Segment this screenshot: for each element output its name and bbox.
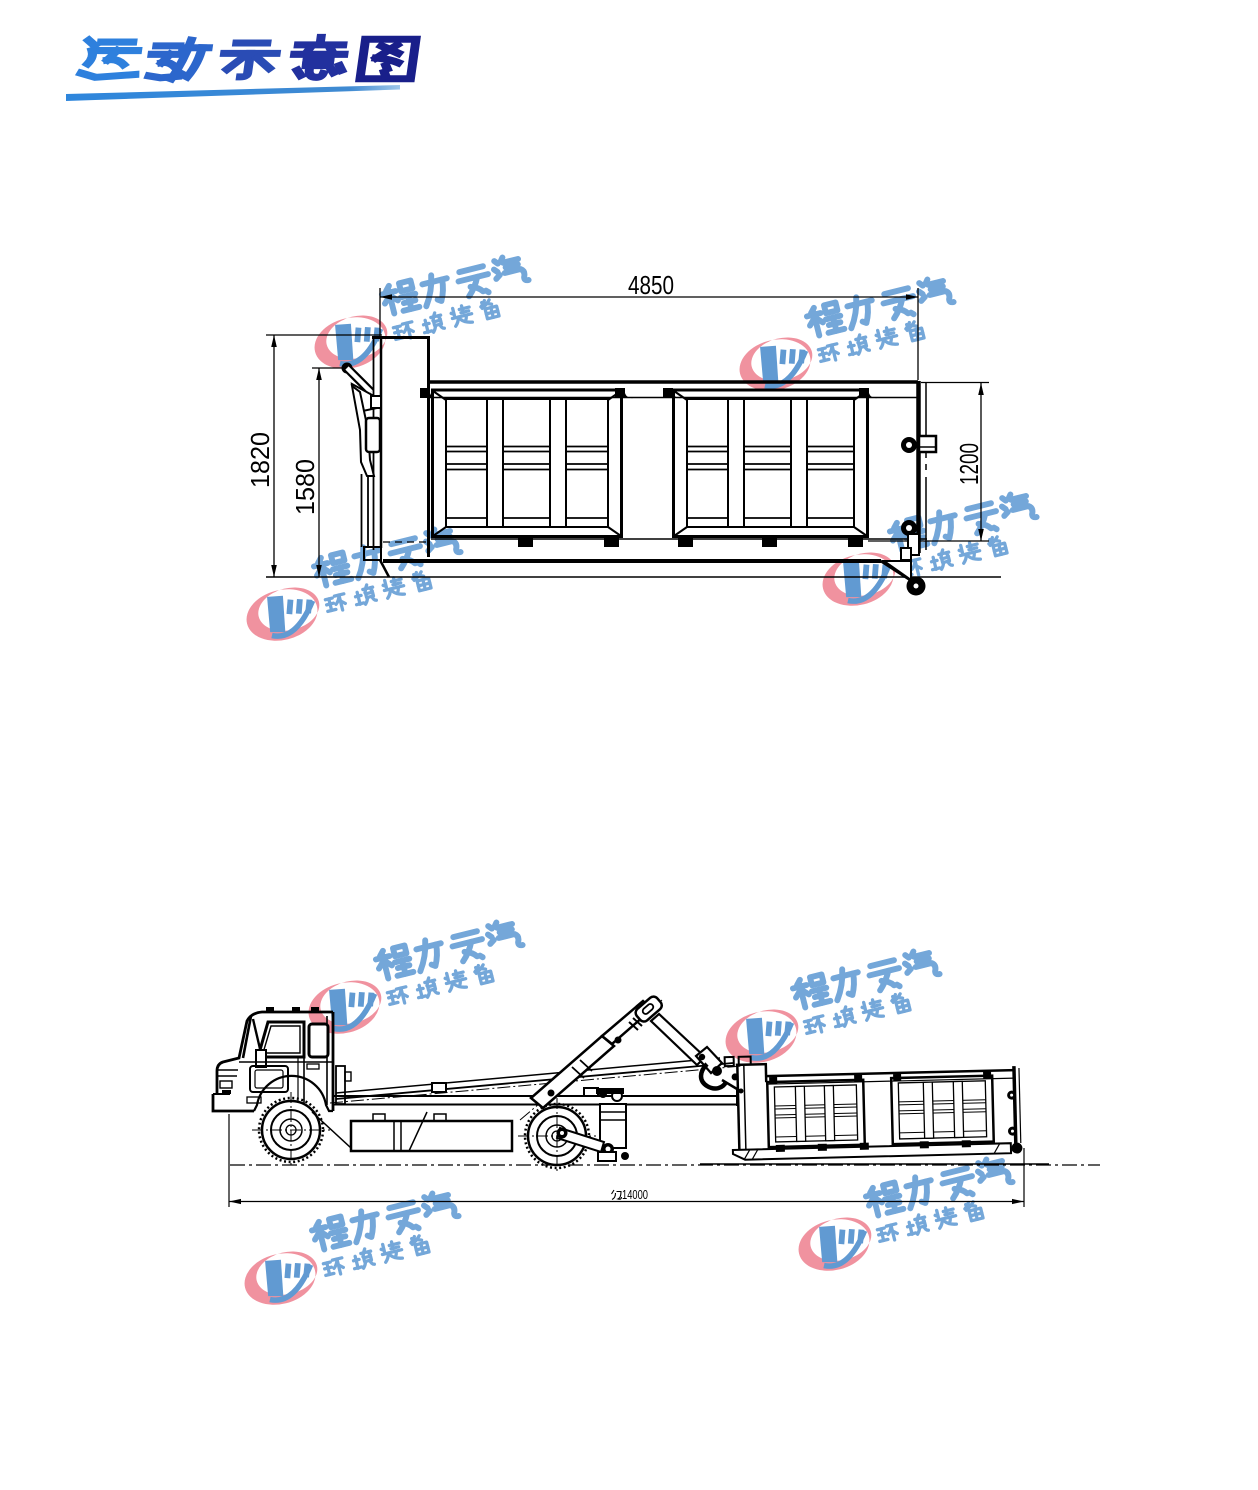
svg-text:14000: 14000 <box>622 1187 648 1202</box>
svg-text:4850: 4850 <box>628 270 674 300</box>
svg-text:1820: 1820 <box>245 432 275 488</box>
svg-text:1200: 1200 <box>954 443 984 485</box>
svg-text:1580: 1580 <box>290 459 320 515</box>
